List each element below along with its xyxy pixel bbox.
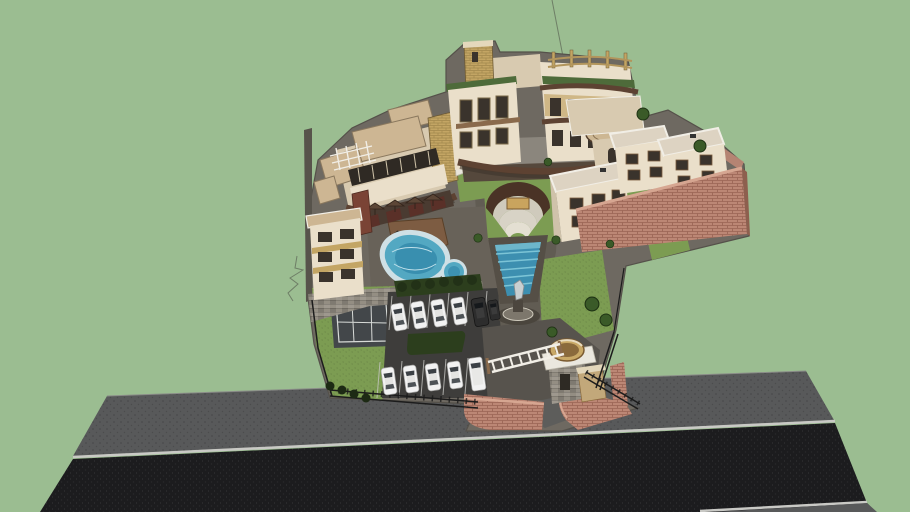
tree [585, 297, 599, 311]
tree [600, 314, 612, 326]
tree [694, 140, 706, 152]
tree [637, 108, 649, 120]
rooftop-unit [690, 134, 696, 138]
parking-island-hedge [407, 331, 465, 355]
rooftop-unit [600, 168, 606, 172]
gatehouse-door [560, 374, 570, 390]
tree [474, 234, 482, 242]
tree [547, 327, 557, 337]
villa-2 [610, 126, 673, 194]
statue-pedestal [513, 300, 523, 312]
model-viewport[interactable] [0, 0, 910, 512]
amphitheater-stage [507, 198, 529, 209]
tree [606, 240, 614, 248]
tree [552, 236, 560, 244]
tree [544, 158, 552, 166]
